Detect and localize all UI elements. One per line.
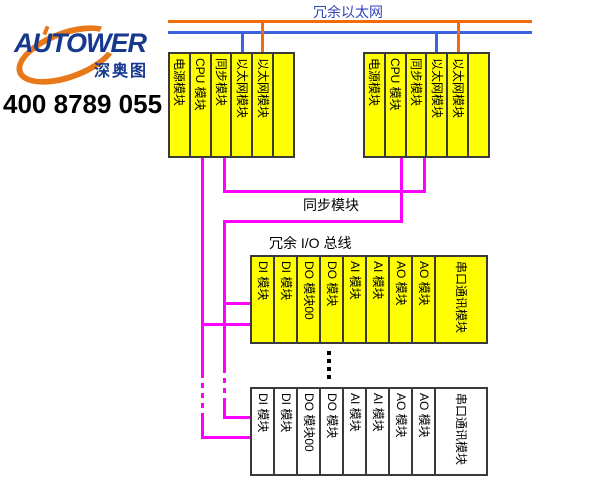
- ethernet-drop-blue-right: [435, 31, 438, 52]
- module-label: AO 模块: [418, 393, 430, 438]
- ethernet-drop-blue-left: [241, 31, 244, 52]
- module-do-2: DO 模块: [321, 257, 344, 342]
- module-power: 电源模块: [365, 54, 386, 156]
- module-label: AI 模块: [372, 393, 384, 432]
- module-ao-1: AO 模块: [390, 257, 413, 342]
- io-bus-line-b-dashed: [223, 368, 226, 402]
- module-label: 以太网模块: [431, 58, 443, 118]
- diagram-canvas: 电源模块 CPU 模块 同步模块 以太网模块 以太网模块 电源模块 CPU 模块…: [0, 0, 600, 480]
- ethernet-drop-orange-left: [261, 20, 264, 52]
- module-label: 以太网模块: [236, 58, 248, 118]
- controller-rack-right: 电源模块 CPU 模块 同步模块 以太网模块 以太网模块: [363, 52, 490, 158]
- controller-rack-left: 电源模块 CPU 模块 同步模块 以太网模块 以太网模块: [168, 52, 295, 158]
- module-label: DI 模块: [280, 261, 292, 300]
- module-label: DO 模块: [326, 393, 338, 438]
- autower-logo: AUTOWER 深奥图: [2, 18, 162, 96]
- redundant-io-bus-label: 冗余 I/O 总线: [269, 233, 351, 253]
- io-bus-line-b-tap-bottom-rack: [223, 416, 250, 419]
- module-label: AO 模块: [418, 261, 430, 306]
- redundant-ethernet-label: 冗余以太网: [313, 2, 383, 22]
- module-label: DI 模块: [280, 393, 292, 432]
- logo-chinese-name: 深奥图: [94, 57, 148, 81]
- module-ethernet-1: 以太网模块: [427, 54, 448, 156]
- ethernet-drop-orange-right: [457, 20, 460, 52]
- module-label: AO 模块: [395, 261, 407, 306]
- module-ao-2: AO 模块: [413, 257, 436, 342]
- module-do-2: DO 模块: [321, 389, 344, 474]
- module-label: 串口通讯模块: [455, 393, 467, 465]
- module-empty: [469, 54, 488, 156]
- module-ai-1: AI 模块: [344, 389, 367, 474]
- io-bus-line-a-vertical: [201, 157, 204, 373]
- io-bus-line-b-tap-top-rack: [223, 302, 250, 305]
- io-rack-bottom: DI 模块 DI 模块 DO 模块00 DO 模块 AI 模块 AI 模块 AO…: [250, 387, 488, 476]
- module-label: DI 模块: [257, 393, 269, 432]
- module-label: DI 模块: [257, 261, 269, 300]
- ethernet-bus-blue: [168, 31, 532, 34]
- module-label: AI 模块: [349, 393, 361, 432]
- module-label: DO 模块: [326, 261, 338, 306]
- module-ethernet-2: 以太网模块: [253, 54, 274, 156]
- module-label: DO 模块00: [303, 393, 315, 452]
- io-bus-line-b-drop-right-cpu: [400, 157, 403, 223]
- module-sync: 同步模块: [407, 54, 428, 156]
- module-ao-1: AO 模块: [390, 389, 413, 474]
- module-label: 电源模块: [173, 58, 185, 106]
- sync-drop-right: [423, 157, 426, 193]
- module-label: 同步模块: [215, 58, 227, 106]
- sync-module-label: 同步模块: [303, 195, 359, 215]
- module-sync: 同步模块: [212, 54, 233, 156]
- continuation-ellipsis: [327, 351, 331, 379]
- module-label: 以太网模块: [257, 58, 269, 118]
- module-ai-2: AI 模块: [367, 389, 390, 474]
- module-di-1: DI 模块: [252, 257, 275, 342]
- sync-link-horizontal: [223, 190, 426, 193]
- module-label: 以太网模块: [452, 58, 464, 118]
- module-do-1: DO 模块00: [298, 389, 321, 474]
- io-bus-line-a-dashed: [201, 373, 204, 415]
- module-serial-comm: 串口通讯模块: [436, 257, 486, 342]
- module-label: 电源模块: [368, 58, 380, 106]
- module-empty: [274, 54, 293, 156]
- sync-drop-left: [223, 157, 226, 193]
- module-ao-2: AO 模块: [413, 389, 436, 474]
- module-label: CPU 模块: [389, 58, 401, 111]
- module-cpu: CPU 模块: [386, 54, 407, 156]
- module-label: AI 模块: [372, 261, 384, 300]
- module-do-1: DO 模块00: [298, 257, 321, 342]
- module-di-2: DI 模块: [275, 389, 298, 474]
- module-ethernet-2: 以太网模块: [448, 54, 469, 156]
- module-label: AO 模块: [395, 393, 407, 438]
- io-bus-line-b-vertical: [223, 220, 226, 368]
- module-label: 同步模块: [410, 58, 422, 106]
- module-serial-comm: 串口通讯模块: [436, 389, 486, 474]
- module-label: DO 模块00: [303, 261, 315, 320]
- module-label: CPU 模块: [194, 58, 206, 111]
- module-ai-1: AI 模块: [344, 257, 367, 342]
- io-rack-top: DI 模块 DI 模块 DO 模块00 DO 模块 AI 模块 AI 模块 AO…: [250, 255, 488, 344]
- module-ai-2: AI 模块: [367, 257, 390, 342]
- module-di-1: DI 模块: [252, 389, 275, 474]
- module-di-2: DI 模块: [275, 257, 298, 342]
- phone-number: 400 8789 055: [3, 89, 162, 120]
- logo-wordmark: AUTOWER: [14, 28, 146, 59]
- module-cpu: CPU 模块: [191, 54, 212, 156]
- module-ethernet-1: 以太网模块: [232, 54, 253, 156]
- module-label: 串口通讯模块: [455, 261, 467, 333]
- io-bus-line-b-horizontal: [223, 220, 403, 223]
- io-bus-line-a-tap-bottom-rack: [201, 436, 250, 439]
- module-label: AI 模块: [349, 261, 361, 300]
- module-power: 电源模块: [170, 54, 191, 156]
